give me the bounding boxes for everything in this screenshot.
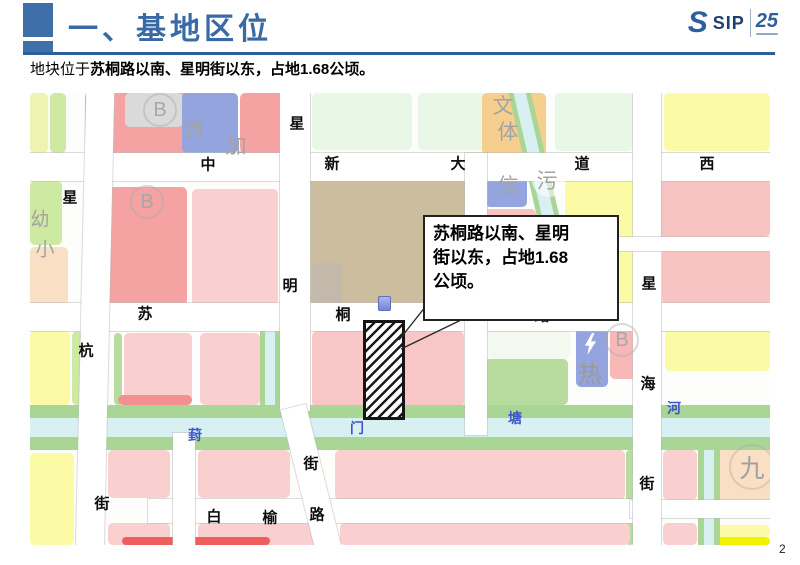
sip-logo-text: SIP (713, 13, 745, 34)
sip-logo-swoosh-icon: S (688, 8, 708, 38)
page-number: 2 (779, 542, 786, 556)
subtitle: 地块位于苏桐路以南、星明街以东，占地1.68公顷。 (30, 58, 374, 79)
title-bullet-icon (23, 3, 53, 52)
callout-leader-lines (30, 93, 770, 545)
header-divider (23, 52, 775, 55)
logo-anniversary: 25 (756, 11, 778, 35)
slide: 一、基地区位 S SIP 25 地块位于苏桐路以南、星明街以东，占地1.68公顷… (0, 0, 800, 565)
sip-logo: S SIP 25 (688, 8, 778, 38)
logo-divider (750, 9, 751, 37)
callout-box: 苏桐路以南、星明 街以东，占地1.68 公顷。 (423, 215, 619, 321)
page-title: 一、基地区位 (68, 4, 272, 48)
subtitle-prefix: 地块位于 (30, 61, 90, 78)
site-map: 中新大道西苏桐路白榆路星杭街星明街星海街葑门塘河消加文体信污热幼小BBB九苏桐路… (30, 93, 770, 545)
subtitle-emphasis: 苏桐路以南、星明街以东，占地1.68公顷。 (90, 61, 374, 78)
